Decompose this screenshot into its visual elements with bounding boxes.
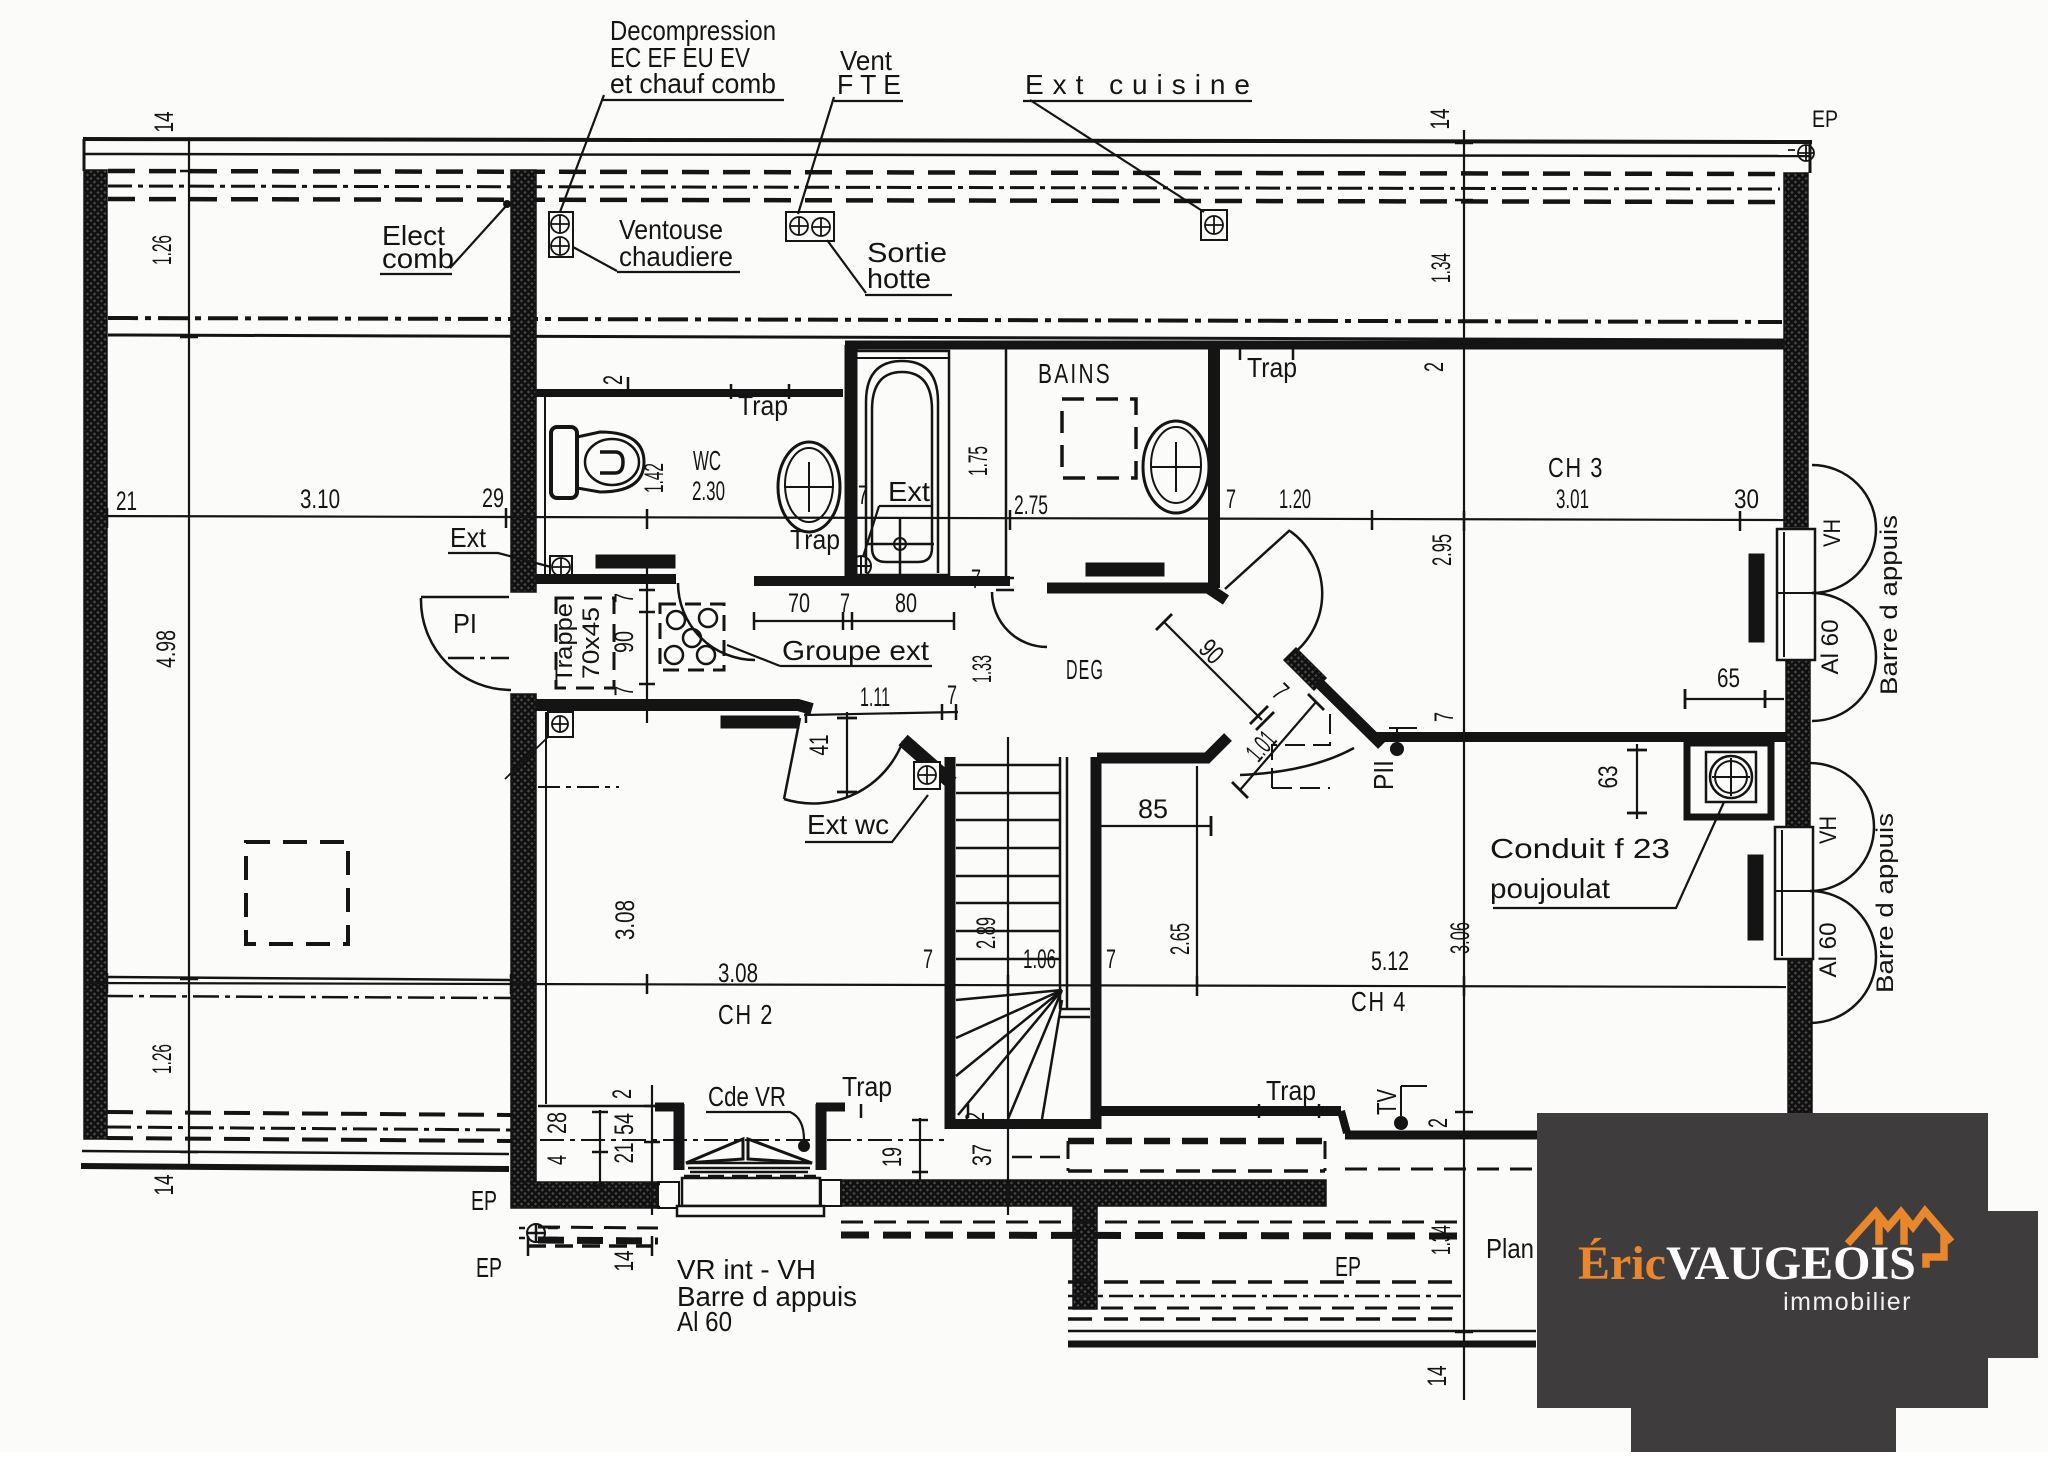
svg-text:14: 14 bbox=[149, 112, 179, 133]
svg-text:PI: PI bbox=[453, 608, 477, 639]
svg-text:14: 14 bbox=[1425, 109, 1455, 130]
svg-text:7: 7 bbox=[1226, 484, 1236, 514]
svg-text:3.08: 3.08 bbox=[610, 900, 640, 940]
svg-text:EP: EP bbox=[1335, 1251, 1361, 1282]
svg-text:poujoulat: poujoulat bbox=[1490, 873, 1610, 904]
svg-text:Trap: Trap bbox=[1247, 352, 1297, 383]
svg-text:21: 21 bbox=[116, 486, 137, 516]
svg-text:85: 85 bbox=[1138, 794, 1168, 824]
svg-text:3.01: 3.01 bbox=[1556, 484, 1589, 514]
svg-text:29: 29 bbox=[482, 483, 504, 513]
svg-text:2: 2 bbox=[960, 1112, 990, 1122]
svg-text:Trap: Trap bbox=[790, 524, 840, 555]
svg-text:F T E: F T E bbox=[837, 69, 901, 100]
svg-text:Ext: Ext bbox=[888, 476, 930, 507]
svg-text:65: 65 bbox=[1717, 663, 1740, 693]
svg-text:2.95: 2.95 bbox=[1427, 534, 1457, 566]
svg-text:90: 90 bbox=[609, 631, 639, 653]
svg-text:2: 2 bbox=[1423, 1118, 1453, 1128]
svg-text:14: 14 bbox=[149, 1175, 179, 1196]
svg-text:CH 2: CH 2 bbox=[718, 999, 774, 1030]
svg-text:21: 21 bbox=[609, 1143, 639, 1164]
svg-text:37: 37 bbox=[967, 1144, 997, 1166]
svg-text:VH: VH bbox=[1815, 816, 1842, 844]
svg-text:CH 3: CH 3 bbox=[1548, 452, 1604, 483]
svg-text:et chauf comb: et chauf comb bbox=[610, 68, 776, 99]
svg-text:1.75: 1.75 bbox=[963, 446, 993, 476]
svg-text:4.98: 4.98 bbox=[151, 630, 181, 668]
svg-text:immobilier: immobilier bbox=[1783, 1288, 1912, 1316]
svg-text:14: 14 bbox=[1422, 1366, 1452, 1387]
svg-text:Al 60: Al 60 bbox=[1815, 923, 1842, 978]
svg-text:Cde VR: Cde VR bbox=[708, 1081, 786, 1112]
svg-text:1.33: 1.33 bbox=[967, 655, 997, 683]
svg-text:ÉricVAUGEOIS: ÉricVAUGEOIS bbox=[1578, 1237, 1916, 1290]
svg-text:80: 80 bbox=[895, 588, 917, 618]
svg-text:Trap: Trap bbox=[842, 1071, 892, 1102]
svg-text:7: 7 bbox=[947, 680, 957, 710]
svg-text:2.75: 2.75 bbox=[1014, 490, 1048, 520]
svg-text:5.12: 5.12 bbox=[1371, 946, 1409, 976]
svg-text:hotte: hotte bbox=[867, 263, 931, 294]
svg-text:1.34: 1.34 bbox=[1426, 253, 1456, 283]
svg-text:EP: EP bbox=[476, 1252, 502, 1283]
svg-text:30: 30 bbox=[1734, 484, 1759, 514]
svg-text:PII: PII bbox=[1368, 760, 1399, 790]
svg-text:70: 70 bbox=[788, 588, 810, 618]
svg-text:1.26: 1.26 bbox=[147, 1044, 177, 1074]
svg-text:41: 41 bbox=[804, 735, 834, 756]
svg-text:1.20: 1.20 bbox=[1279, 484, 1311, 514]
svg-text:7: 7 bbox=[971, 564, 981, 594]
svg-text:2.30: 2.30 bbox=[692, 476, 725, 506]
svg-text:1.26: 1.26 bbox=[147, 235, 177, 265]
svg-text:2: 2 bbox=[598, 375, 628, 385]
svg-text:1.34: 1.34 bbox=[1426, 1225, 1456, 1255]
svg-text:14: 14 bbox=[609, 1251, 639, 1272]
svg-text:1.11: 1.11 bbox=[860, 682, 890, 712]
svg-text:chaudiere: chaudiere bbox=[619, 241, 733, 272]
svg-text:Al 60: Al 60 bbox=[677, 1306, 732, 1337]
svg-text:2.65: 2.65 bbox=[1165, 923, 1195, 955]
svg-text:3.06: 3.06 bbox=[1445, 922, 1475, 954]
svg-text:7: 7 bbox=[858, 480, 868, 510]
svg-text:EP: EP bbox=[1812, 106, 1838, 133]
svg-text:Ext wc: Ext wc bbox=[807, 809, 889, 840]
svg-text:1.06: 1.06 bbox=[1023, 944, 1056, 974]
svg-text:7: 7 bbox=[1429, 712, 1459, 722]
svg-text:4: 4 bbox=[542, 1155, 572, 1165]
svg-text:2: 2 bbox=[607, 1089, 637, 1099]
svg-text:VH: VH bbox=[1819, 519, 1846, 547]
svg-text:Ext: Ext bbox=[450, 522, 486, 553]
svg-text:Plan: Plan bbox=[1486, 1233, 1534, 1264]
svg-text:Barre d appuis: Barre d appuis bbox=[1876, 515, 1903, 695]
svg-text:Barre d appuis: Barre d appuis bbox=[1872, 813, 1899, 993]
svg-text:Conduit f 23: Conduit f 23 bbox=[1490, 833, 1670, 864]
svg-text:3.10: 3.10 bbox=[300, 484, 340, 514]
svg-text:63: 63 bbox=[1593, 766, 1623, 789]
svg-text:BAINS: BAINS bbox=[1038, 358, 1112, 389]
svg-text:19: 19 bbox=[877, 1147, 907, 1167]
svg-text:TV: TV bbox=[1371, 1089, 1402, 1115]
svg-text:Trappe: Trappe bbox=[551, 603, 578, 683]
svg-text:comb: comb bbox=[382, 243, 454, 274]
svg-text:Trap: Trap bbox=[1266, 1075, 1316, 1106]
svg-text:Ext cuisine: Ext cuisine bbox=[1025, 69, 1250, 100]
svg-text:7: 7 bbox=[609, 593, 639, 603]
svg-text:CH 4: CH 4 bbox=[1351, 986, 1407, 1017]
svg-text:DEG: DEG bbox=[1066, 654, 1104, 685]
svg-text:54: 54 bbox=[609, 1113, 639, 1135]
svg-text:EP: EP bbox=[471, 1185, 497, 1216]
svg-text:2: 2 bbox=[1419, 362, 1449, 372]
svg-text:Al 60: Al 60 bbox=[1817, 620, 1844, 675]
svg-text:7: 7 bbox=[609, 686, 639, 696]
svg-text:3.08: 3.08 bbox=[718, 958, 758, 988]
svg-text:Groupe ext: Groupe ext bbox=[782, 635, 929, 666]
svg-text:28: 28 bbox=[542, 1112, 572, 1134]
svg-text:2.89: 2.89 bbox=[971, 917, 1001, 949]
svg-text:7: 7 bbox=[923, 944, 933, 974]
svg-text:7: 7 bbox=[840, 588, 850, 618]
svg-text:WC: WC bbox=[693, 445, 721, 476]
svg-text:Trap: Trap bbox=[738, 390, 788, 421]
svg-text:7: 7 bbox=[1106, 944, 1116, 974]
svg-text:1.42: 1.42 bbox=[639, 463, 669, 493]
svg-text:70x45: 70x45 bbox=[578, 607, 605, 679]
